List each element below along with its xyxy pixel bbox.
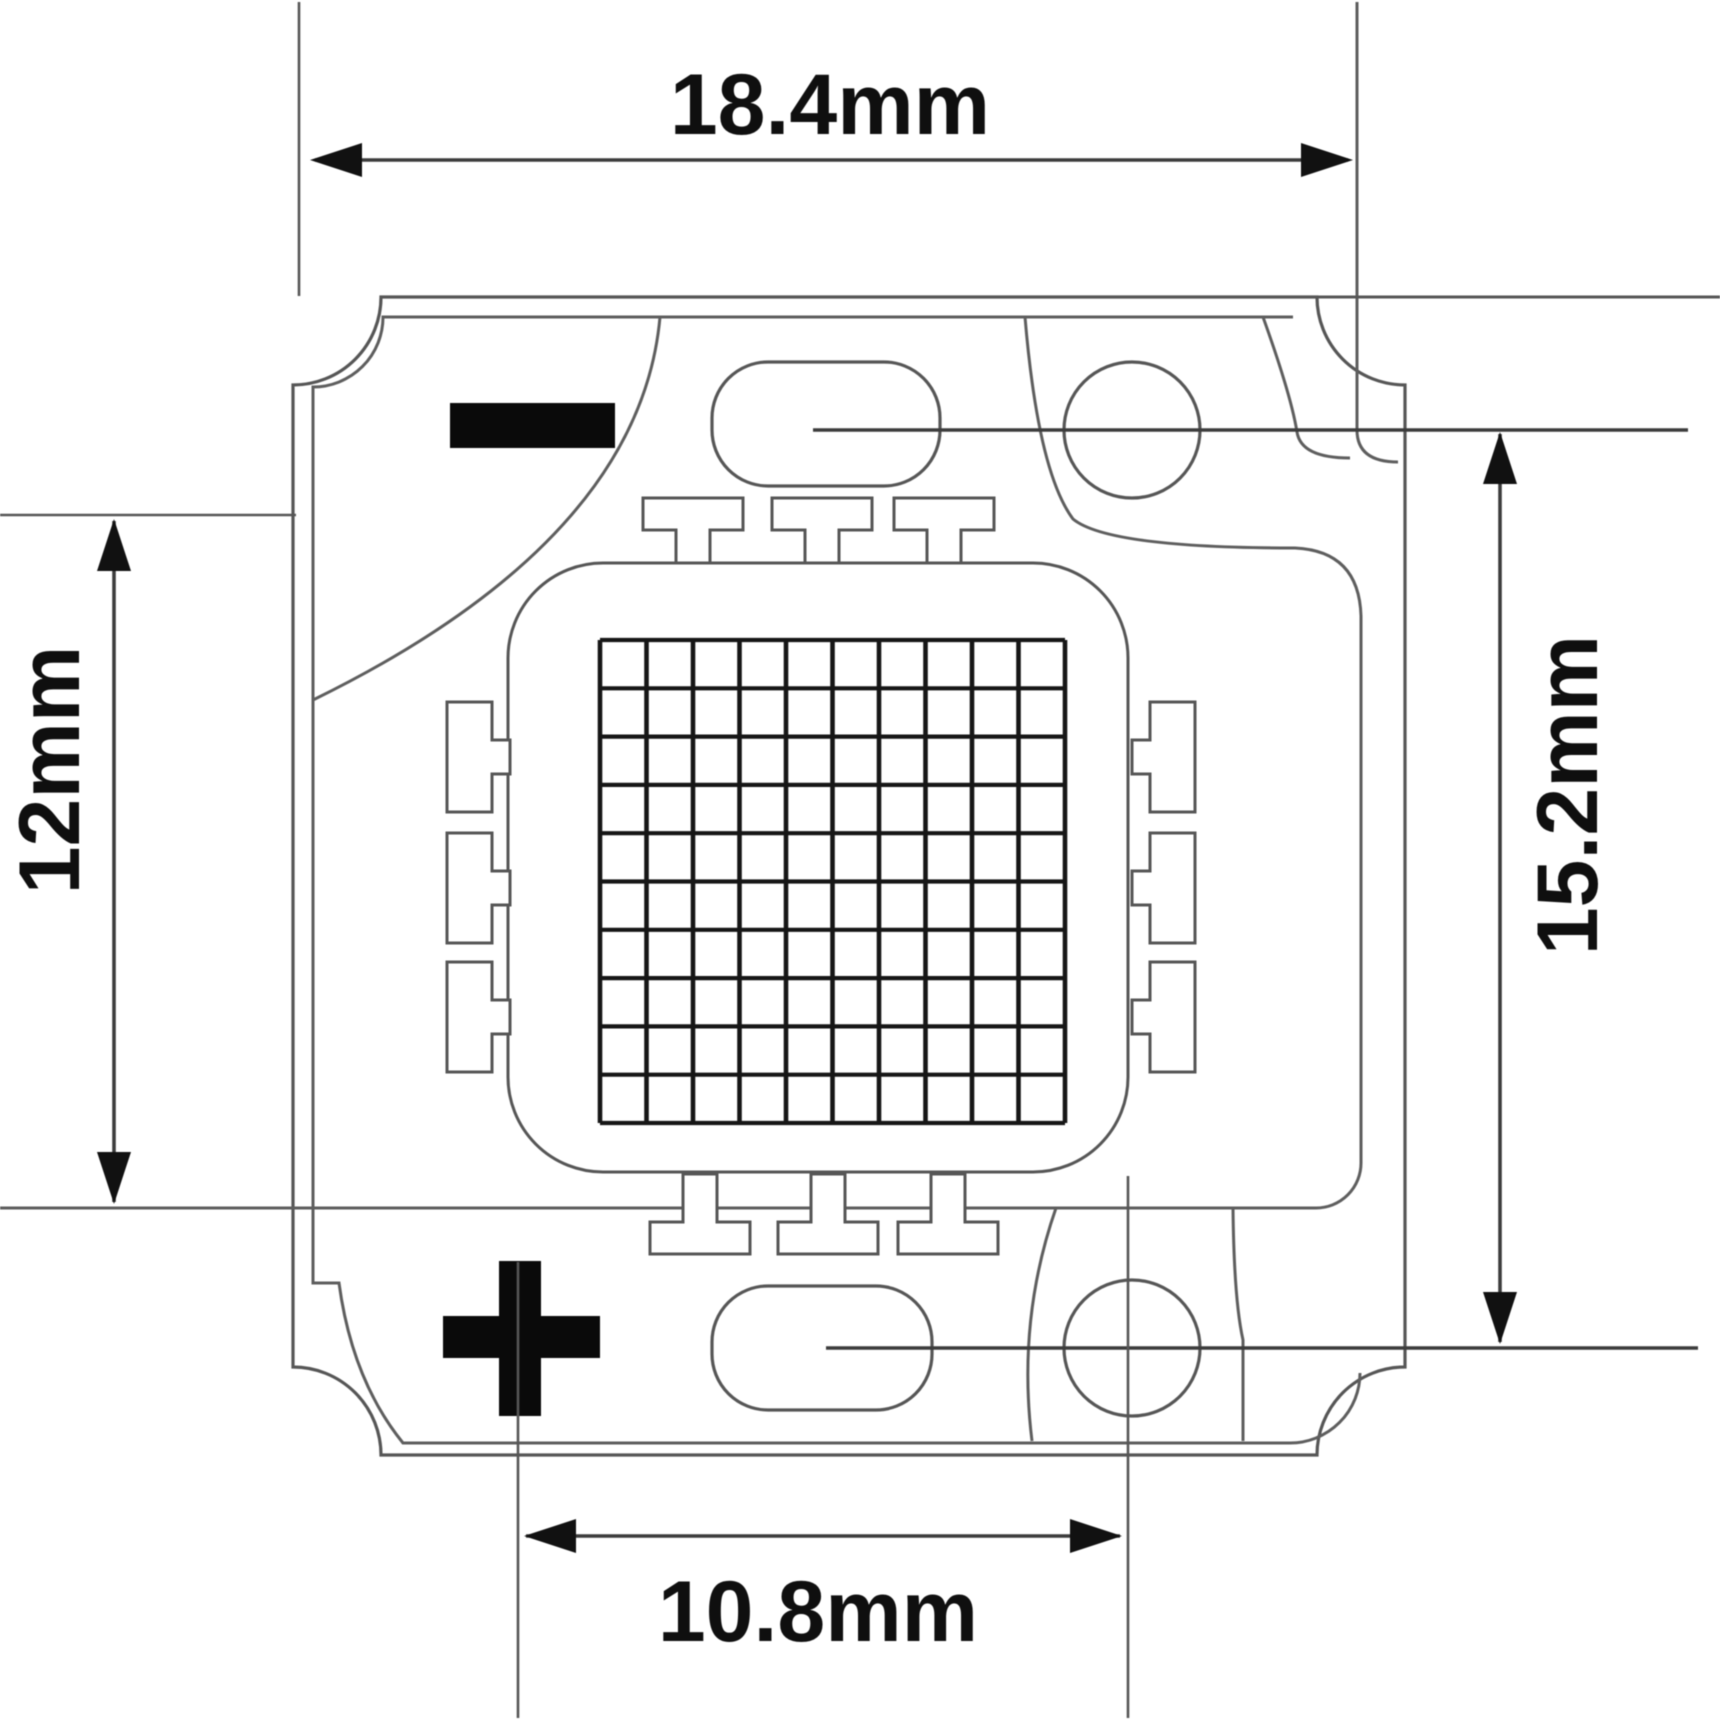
arrowhead-down-icon [1483, 1292, 1517, 1344]
dimension-label-top: 18.4mm [670, 57, 990, 153]
arrowhead-down-icon [97, 1152, 131, 1204]
arrowhead-left-icon [310, 143, 362, 177]
dimension-label-right: 15.2mm [1520, 635, 1616, 955]
led-dimension-drawing-page: 18.4mm 12mm 15.2mm 10.8mm [0, 0, 1720, 1720]
led-dimension-drawing: 18.4mm 12mm 15.2mm 10.8mm [0, 0, 1720, 1720]
dimension-left: 12mm [0, 515, 296, 1204]
dimension-right: 15.2mm [1483, 432, 1616, 1344]
arrowhead-up-icon [97, 519, 131, 571]
dimension-label-bottom: 10.8mm [658, 1564, 978, 1660]
solder-pad-top [712, 362, 940, 486]
dimension-label-left: 12mm [2, 646, 98, 895]
dimension-top: 18.4mm [299, 2, 1353, 296]
arrowhead-right-icon [1070, 1519, 1122, 1553]
negative-terminal-mark [450, 403, 615, 448]
arrowhead-up-icon [1483, 432, 1517, 484]
arrowhead-left-icon [524, 1519, 576, 1553]
arrowhead-right-icon [1301, 143, 1353, 177]
